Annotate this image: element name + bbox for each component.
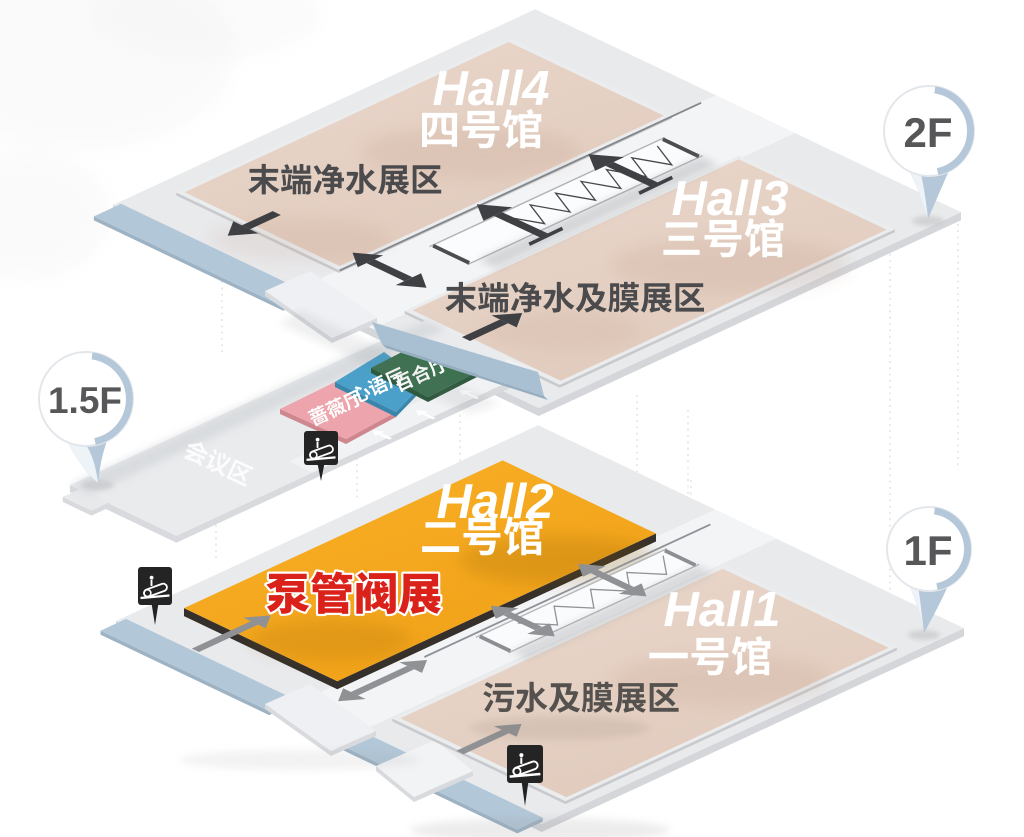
svg-text:Hall1: Hall1: [663, 583, 780, 637]
svg-text:2F: 2F: [903, 109, 952, 156]
svg-text:Hall4: Hall4: [432, 62, 549, 116]
svg-text:1.5F: 1.5F: [48, 380, 122, 421]
svg-text:1F: 1F: [903, 527, 952, 574]
svg-text:Hall3: Hall3: [671, 172, 788, 226]
